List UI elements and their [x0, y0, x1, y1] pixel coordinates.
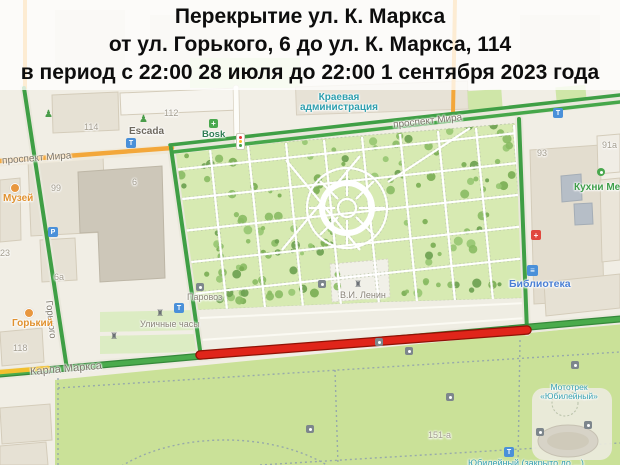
oval-track-inner	[547, 432, 589, 450]
poi-icon[interactable]	[306, 425, 314, 433]
building-number: 112	[164, 108, 178, 118]
library-icon[interactable]: ≡	[527, 265, 538, 276]
poi-icon[interactable]	[375, 338, 383, 346]
closure-banner: Перекрытие ул. К. Маркса от ул. Горького…	[0, 0, 620, 90]
building-number: 6а	[54, 272, 64, 282]
museum-icon[interactable]	[10, 183, 20, 193]
cafe-icon[interactable]	[24, 308, 34, 318]
pharmacy-icon[interactable]: +	[531, 230, 541, 240]
poi-label-escada[interactable]: Escada	[129, 126, 164, 137]
building-number: 6	[132, 177, 137, 187]
poi-label-kraevaya-2[interactable]: администрация	[278, 102, 400, 113]
poi-label-gorkiy[interactable]: Горький	[12, 318, 53, 329]
transit-stop-icon[interactable]: Т	[126, 138, 136, 148]
poi-label-yubileyny[interactable]: Юбилейный (закрыто до ...)	[468, 459, 584, 465]
building-number: 93	[537, 148, 547, 158]
person-icon[interactable]: ♟	[139, 115, 148, 125]
transit-stop-icon[interactable]: Т	[174, 303, 184, 313]
building-number: 114	[84, 122, 98, 132]
building-number: 23	[0, 248, 10, 258]
banner-period: в период с 22:00 28 июля до 22:00 1 сент…	[0, 60, 620, 86]
poi-label-mototrek-2[interactable]: «Юбилейный»	[532, 392, 606, 401]
bike-icon[interactable]	[196, 283, 204, 291]
poi-icon[interactable]	[584, 421, 592, 429]
poi-label-parovoz[interactable]: Паровоз	[187, 292, 222, 302]
poi-icon[interactable]	[536, 428, 544, 436]
poi-label-biblioteka[interactable]: Библиотека	[509, 278, 571, 290]
building-number: 99	[51, 183, 61, 193]
poi-label-ulichnye-chasy[interactable]: Уличные часы	[140, 319, 200, 329]
parking-icon[interactable]: P	[48, 227, 58, 237]
bike-icon[interactable]	[318, 280, 326, 288]
poi-icon[interactable]	[405, 347, 413, 355]
kuhni-mesto-icon[interactable]	[597, 168, 605, 176]
building-number: 118	[13, 343, 27, 353]
monument-icon[interactable]: ♜	[110, 332, 118, 341]
shop-plus-icon[interactable]: +	[209, 119, 218, 128]
traffic-light-icon	[236, 133, 245, 150]
lenin-monument-icon[interactable]: ♜	[354, 280, 362, 289]
banner-title: Перекрытие ул. К. Маркса	[0, 4, 620, 30]
transit-stop-icon[interactable]: Т	[504, 447, 514, 457]
poi-icon[interactable]	[571, 361, 579, 369]
banner-range: от ул. Горького, 6 до ул. К. Маркса, 114	[0, 32, 620, 58]
poi-label-bosk[interactable]: Bosk	[202, 129, 225, 140]
poi-label-muzey[interactable]: Музей	[3, 193, 33, 204]
monument-icon[interactable]: ♜	[156, 309, 164, 318]
map-screenshot: ♟ ♟ + Т Т Т Т P + ≡ ♜ ♜ ♜ проспект Мира …	[0, 0, 620, 465]
building-number: 91а	[602, 140, 617, 150]
poi-label-kuhni-mesto[interactable]: Кухни Место	[574, 182, 620, 193]
poi-icon[interactable]	[446, 393, 454, 401]
building-number: 151-а	[428, 430, 451, 440]
transit-stop-icon[interactable]: Т	[553, 108, 563, 118]
poi-label-lenin[interactable]: В.И. Ленин	[340, 290, 386, 300]
person-icon[interactable]: ♟	[44, 110, 53, 120]
